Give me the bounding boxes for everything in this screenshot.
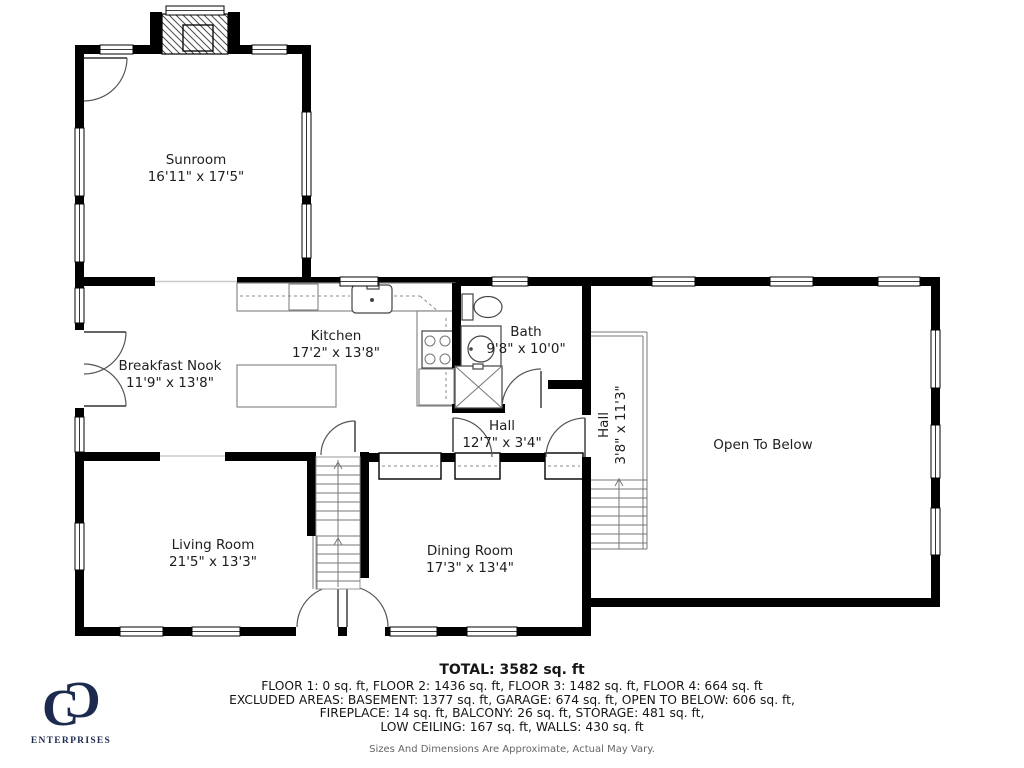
excluded-areas-1: EXCLUDED AREAS: BASEMENT: 1377 sq. ft, G… xyxy=(0,694,1024,708)
kitchen-dims: 17'2" x 13'8" xyxy=(292,345,380,361)
center-stairs xyxy=(307,452,369,589)
bottom-double-doors xyxy=(297,586,388,627)
excluded-areas-3: LOW CEILING: 167 sq. ft, WALLS: 430 sq. … xyxy=(0,721,1024,735)
bath-door xyxy=(502,369,541,408)
breakfast-nook-label: Breakfast Nook xyxy=(119,358,222,374)
dining-room-label: Dining Room xyxy=(427,543,513,559)
hall-dims: 12'7" x 3'4" xyxy=(462,435,541,451)
bath-label: Bath xyxy=(510,324,541,340)
sunroom-dims: 16'11" x 17'5" xyxy=(148,169,245,185)
logo-letter-right: C xyxy=(63,673,101,725)
open-below-windows xyxy=(652,277,940,555)
open-below-walls xyxy=(582,277,940,636)
fireplace-chimney xyxy=(150,6,240,54)
sunroom-label: Sunroom xyxy=(166,152,227,168)
breakfast-nook-dims: 11'9" x 13'8" xyxy=(126,375,214,391)
floor-plan: Sunroom 16'11" x 17'5" Breakfast Nook 11… xyxy=(0,0,1024,660)
disclaimer: Sizes And Dimensions Are Approximate, Ac… xyxy=(0,744,1024,755)
bath-dims: 9'8" x 10'0" xyxy=(486,341,565,357)
kitchen-island xyxy=(237,365,336,407)
logo-monogram-icon: CC xyxy=(26,678,116,736)
total-area: TOTAL: 3582 sq. ft xyxy=(0,662,1024,678)
excluded-areas-2: FIREPLACE: 14 sq. ft, BALCONY: 26 sq. ft… xyxy=(0,707,1024,721)
floor-plan-page: Sunroom 16'11" x 17'5" Breakfast Nook 11… xyxy=(0,0,1024,768)
hall-label: Hall xyxy=(489,418,515,434)
upper-hall-dims: 3'8" x 11'3" xyxy=(613,385,629,464)
company-logo: CC ENTERPRISES xyxy=(26,678,116,746)
open-to-below-label: Open To Below xyxy=(713,437,812,453)
kitchen-label: Kitchen xyxy=(311,328,362,344)
sunroom-door xyxy=(84,58,127,101)
living-room-label: Living Room xyxy=(172,537,255,553)
living-room-dims: 21'5" x 13'3" xyxy=(169,554,257,570)
toilet-icon xyxy=(462,294,502,320)
shower-icon xyxy=(455,364,502,408)
stove-icon xyxy=(422,331,453,368)
area-summary: TOTAL: 3582 sq. ft FLOOR 1: 0 sq. ft, FL… xyxy=(0,662,1024,755)
floor-areas: FLOOR 1: 0 sq. ft, FLOOR 2: 1436 sq. ft,… xyxy=(0,680,1024,694)
logo-text: ENTERPRISES xyxy=(26,736,116,746)
upper-hall-label: Hall xyxy=(596,412,612,438)
dining-room-dims: 17'3" x 13'4" xyxy=(426,560,514,576)
kitchen-sink-icon xyxy=(352,283,392,313)
stairs-door xyxy=(321,421,355,455)
hall-dining-wall xyxy=(369,453,583,479)
